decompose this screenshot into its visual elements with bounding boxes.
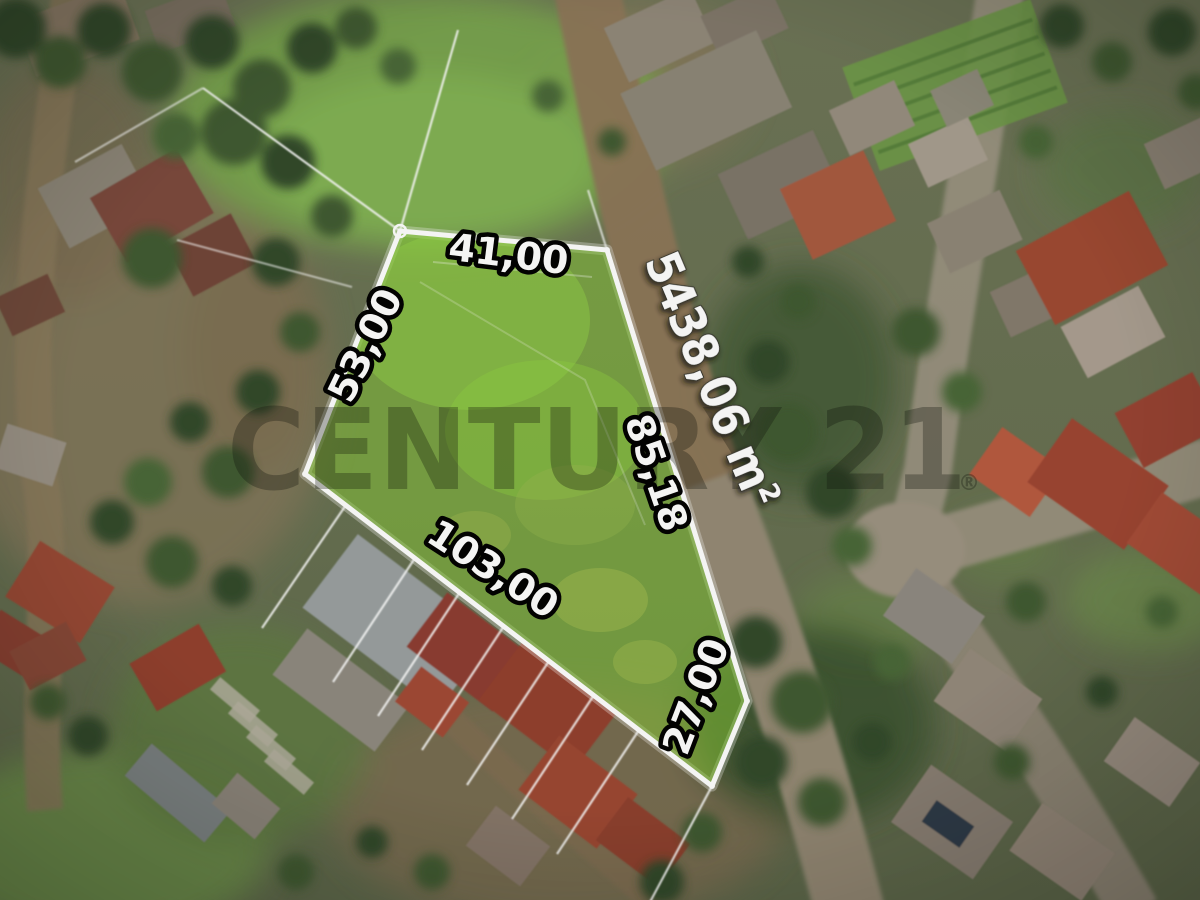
aerial-photo-canvas: CENTURY 21 ® 41,00 53,00 85,18 103,00 27… — [0, 0, 1200, 900]
tone-overlay — [0, 0, 1200, 900]
screenshot: CENTURY 21 ® 41,00 53,00 85,18 103,00 27… — [0, 0, 1200, 900]
